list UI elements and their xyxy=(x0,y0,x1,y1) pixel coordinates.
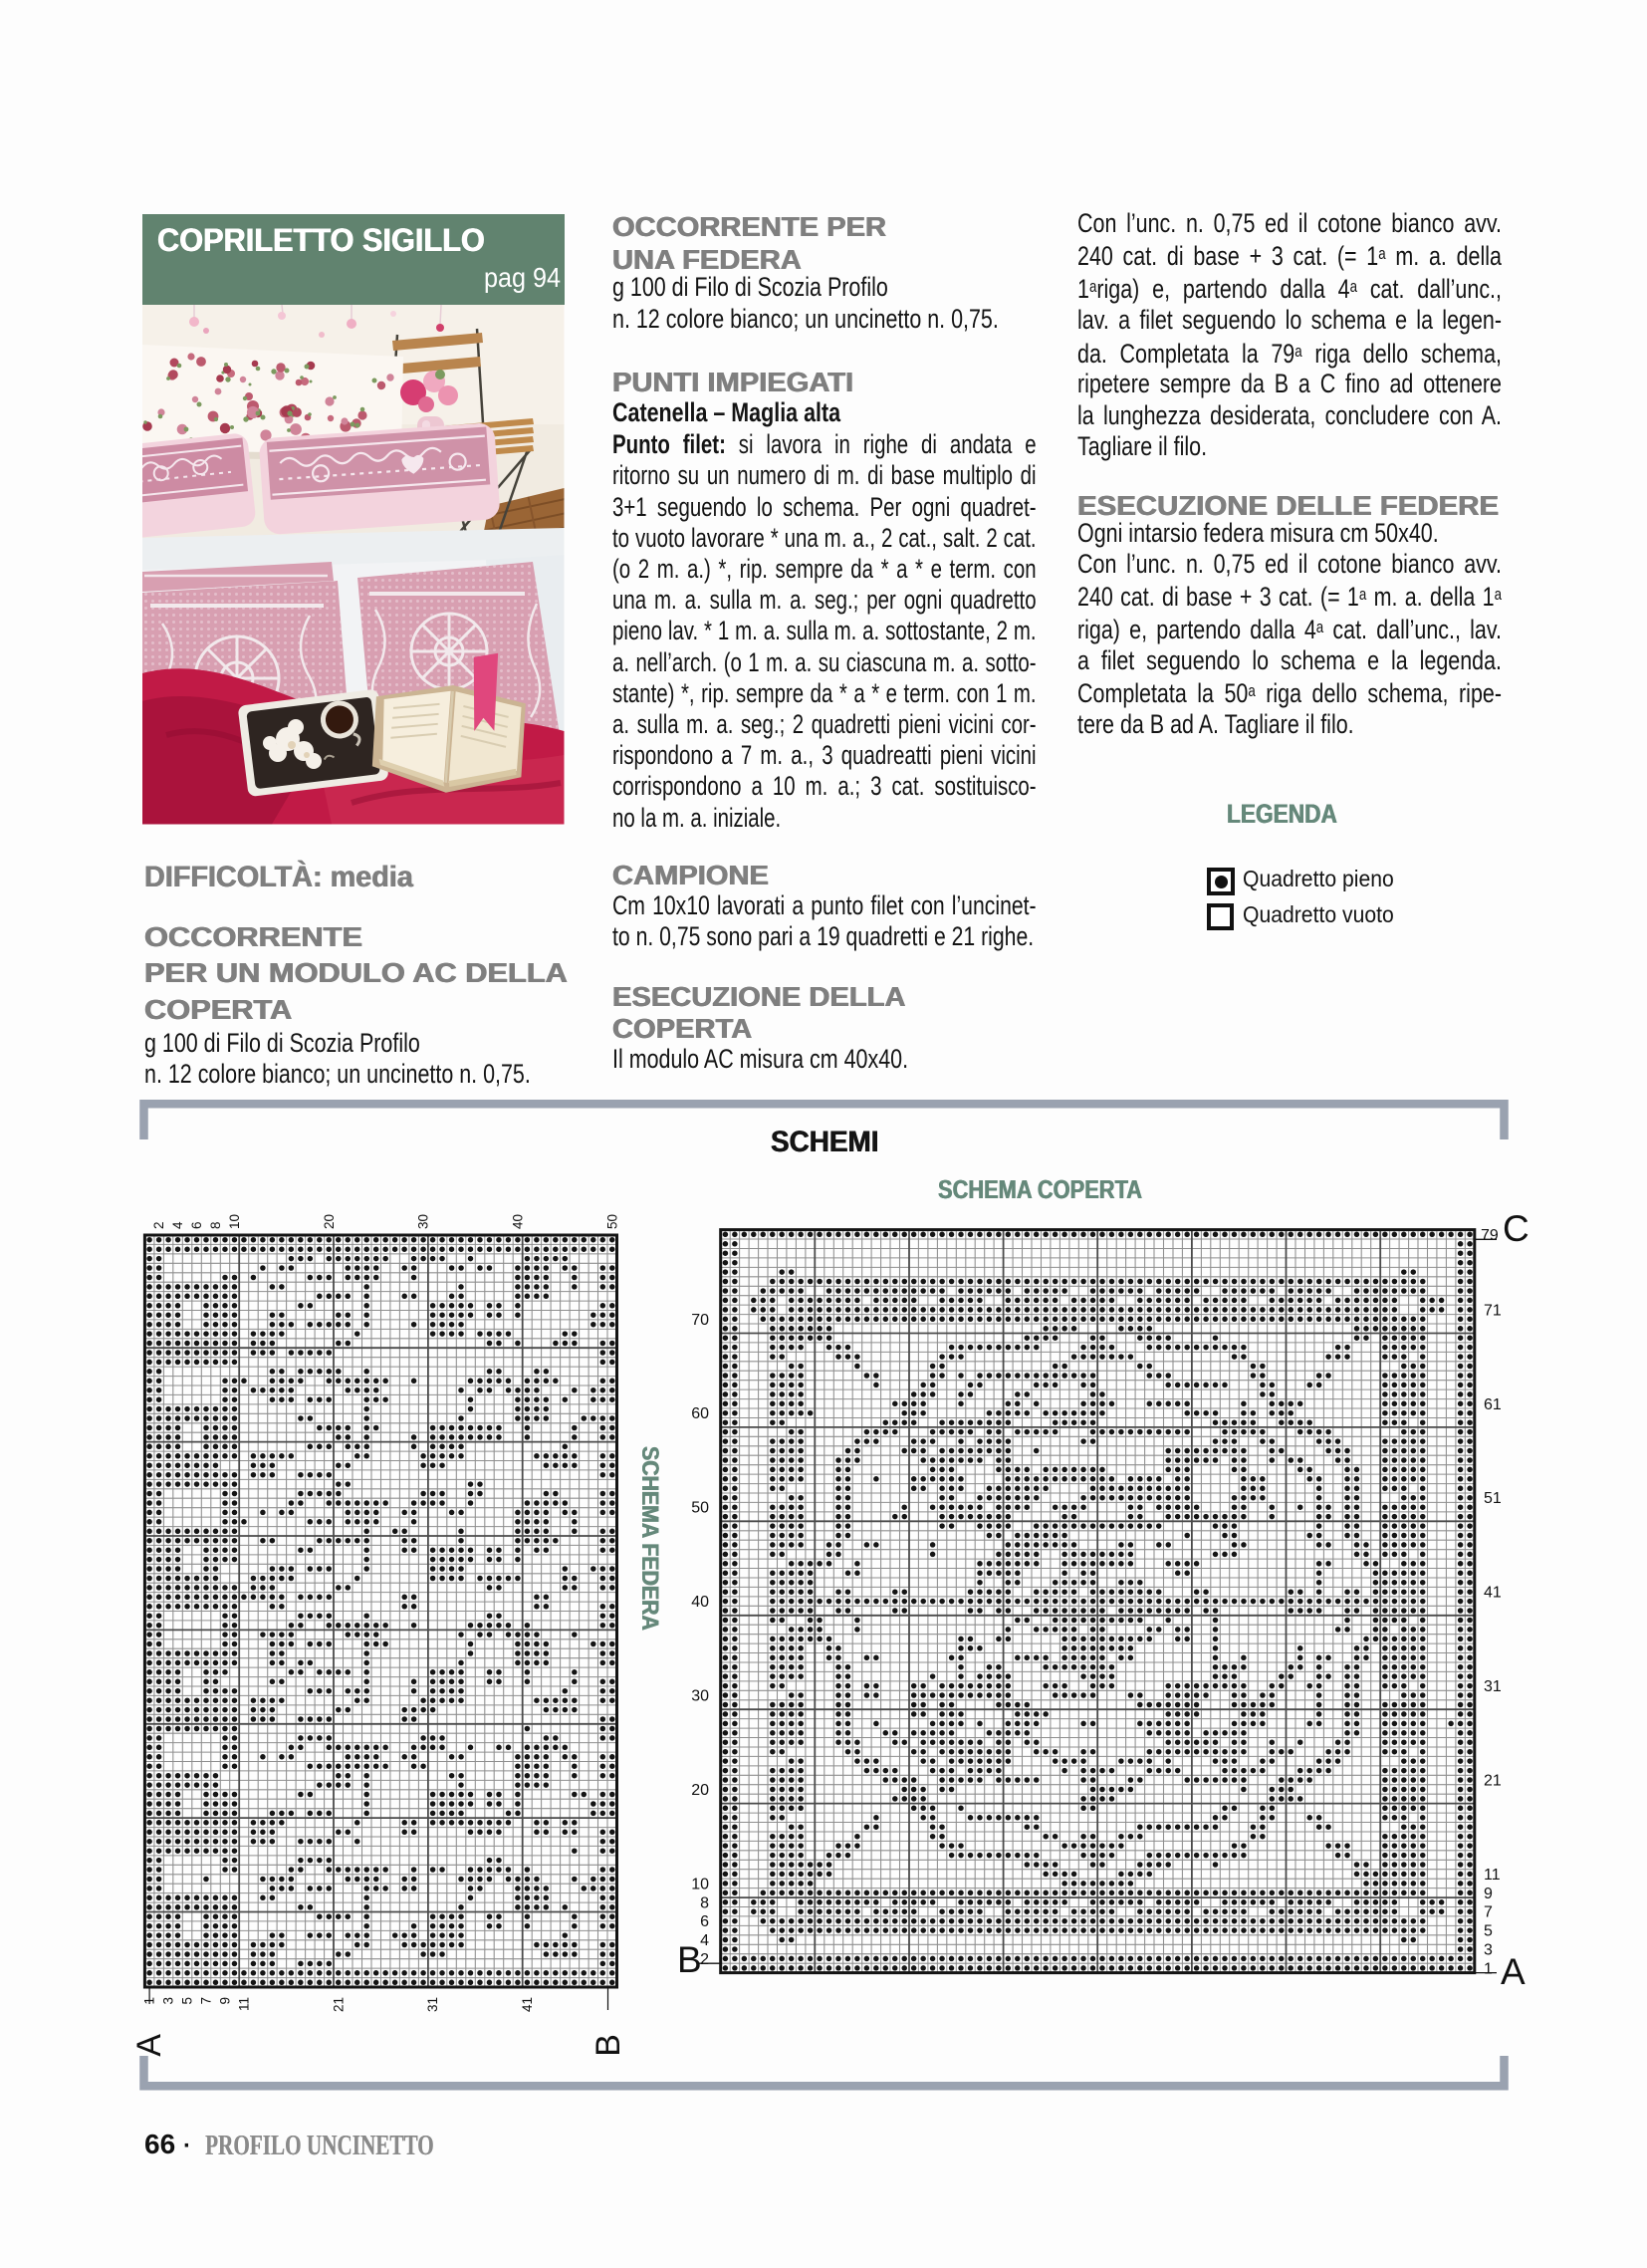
svg-text:41: 41 xyxy=(520,1997,535,2012)
svg-text:40: 40 xyxy=(510,1214,525,1229)
svg-text:C: C xyxy=(1503,1208,1529,1249)
svg-text:31: 31 xyxy=(1484,1678,1502,1695)
svg-text:51: 51 xyxy=(1484,1490,1502,1507)
svg-text:41: 41 xyxy=(1484,1585,1502,1602)
svg-text:B: B xyxy=(589,2034,627,2057)
svg-text:10: 10 xyxy=(691,1876,709,1892)
svg-text:9: 9 xyxy=(218,1997,233,2005)
svg-text:30: 30 xyxy=(416,1214,431,1229)
svg-text:9: 9 xyxy=(1484,1886,1493,1902)
svg-text:3: 3 xyxy=(1484,1942,1493,1959)
svg-text:40: 40 xyxy=(691,1594,709,1611)
svg-text:5: 5 xyxy=(180,1997,195,2005)
svg-text:11: 11 xyxy=(1484,1867,1501,1884)
svg-text:6: 6 xyxy=(700,1913,709,1930)
svg-text:1: 1 xyxy=(1484,1960,1493,1977)
svg-text:60: 60 xyxy=(691,1405,709,1422)
svg-text:2: 2 xyxy=(151,1221,166,1229)
svg-text:11: 11 xyxy=(237,1997,252,2011)
svg-text:20: 20 xyxy=(691,1782,709,1799)
svg-text:4: 4 xyxy=(170,1221,185,1229)
svg-text:79: 79 xyxy=(1481,1227,1499,1244)
svg-text:A: A xyxy=(1501,1951,1526,1992)
svg-text:61: 61 xyxy=(1484,1396,1502,1413)
svg-text:10: 10 xyxy=(227,1214,242,1229)
svg-text:B: B xyxy=(677,1939,702,1980)
svg-text:A: A xyxy=(130,2034,168,2057)
svg-text:21: 21 xyxy=(331,1997,346,2012)
svg-text:71: 71 xyxy=(1484,1302,1502,1319)
svg-text:21: 21 xyxy=(1484,1773,1502,1790)
svg-text:6: 6 xyxy=(189,1221,204,1229)
svg-text:70: 70 xyxy=(691,1312,709,1329)
svg-text:8: 8 xyxy=(208,1221,223,1229)
svg-text:30: 30 xyxy=(691,1688,709,1705)
svg-text:31: 31 xyxy=(425,1997,440,2012)
svg-text:7: 7 xyxy=(199,1997,214,2005)
svg-text:5: 5 xyxy=(1484,1923,1493,1940)
svg-text:50: 50 xyxy=(604,1214,619,1229)
svg-text:3: 3 xyxy=(161,1997,176,2005)
svg-text:7: 7 xyxy=(1484,1904,1493,1921)
svg-text:8: 8 xyxy=(700,1894,709,1911)
svg-text:20: 20 xyxy=(322,1214,337,1229)
svg-text:50: 50 xyxy=(691,1500,709,1517)
